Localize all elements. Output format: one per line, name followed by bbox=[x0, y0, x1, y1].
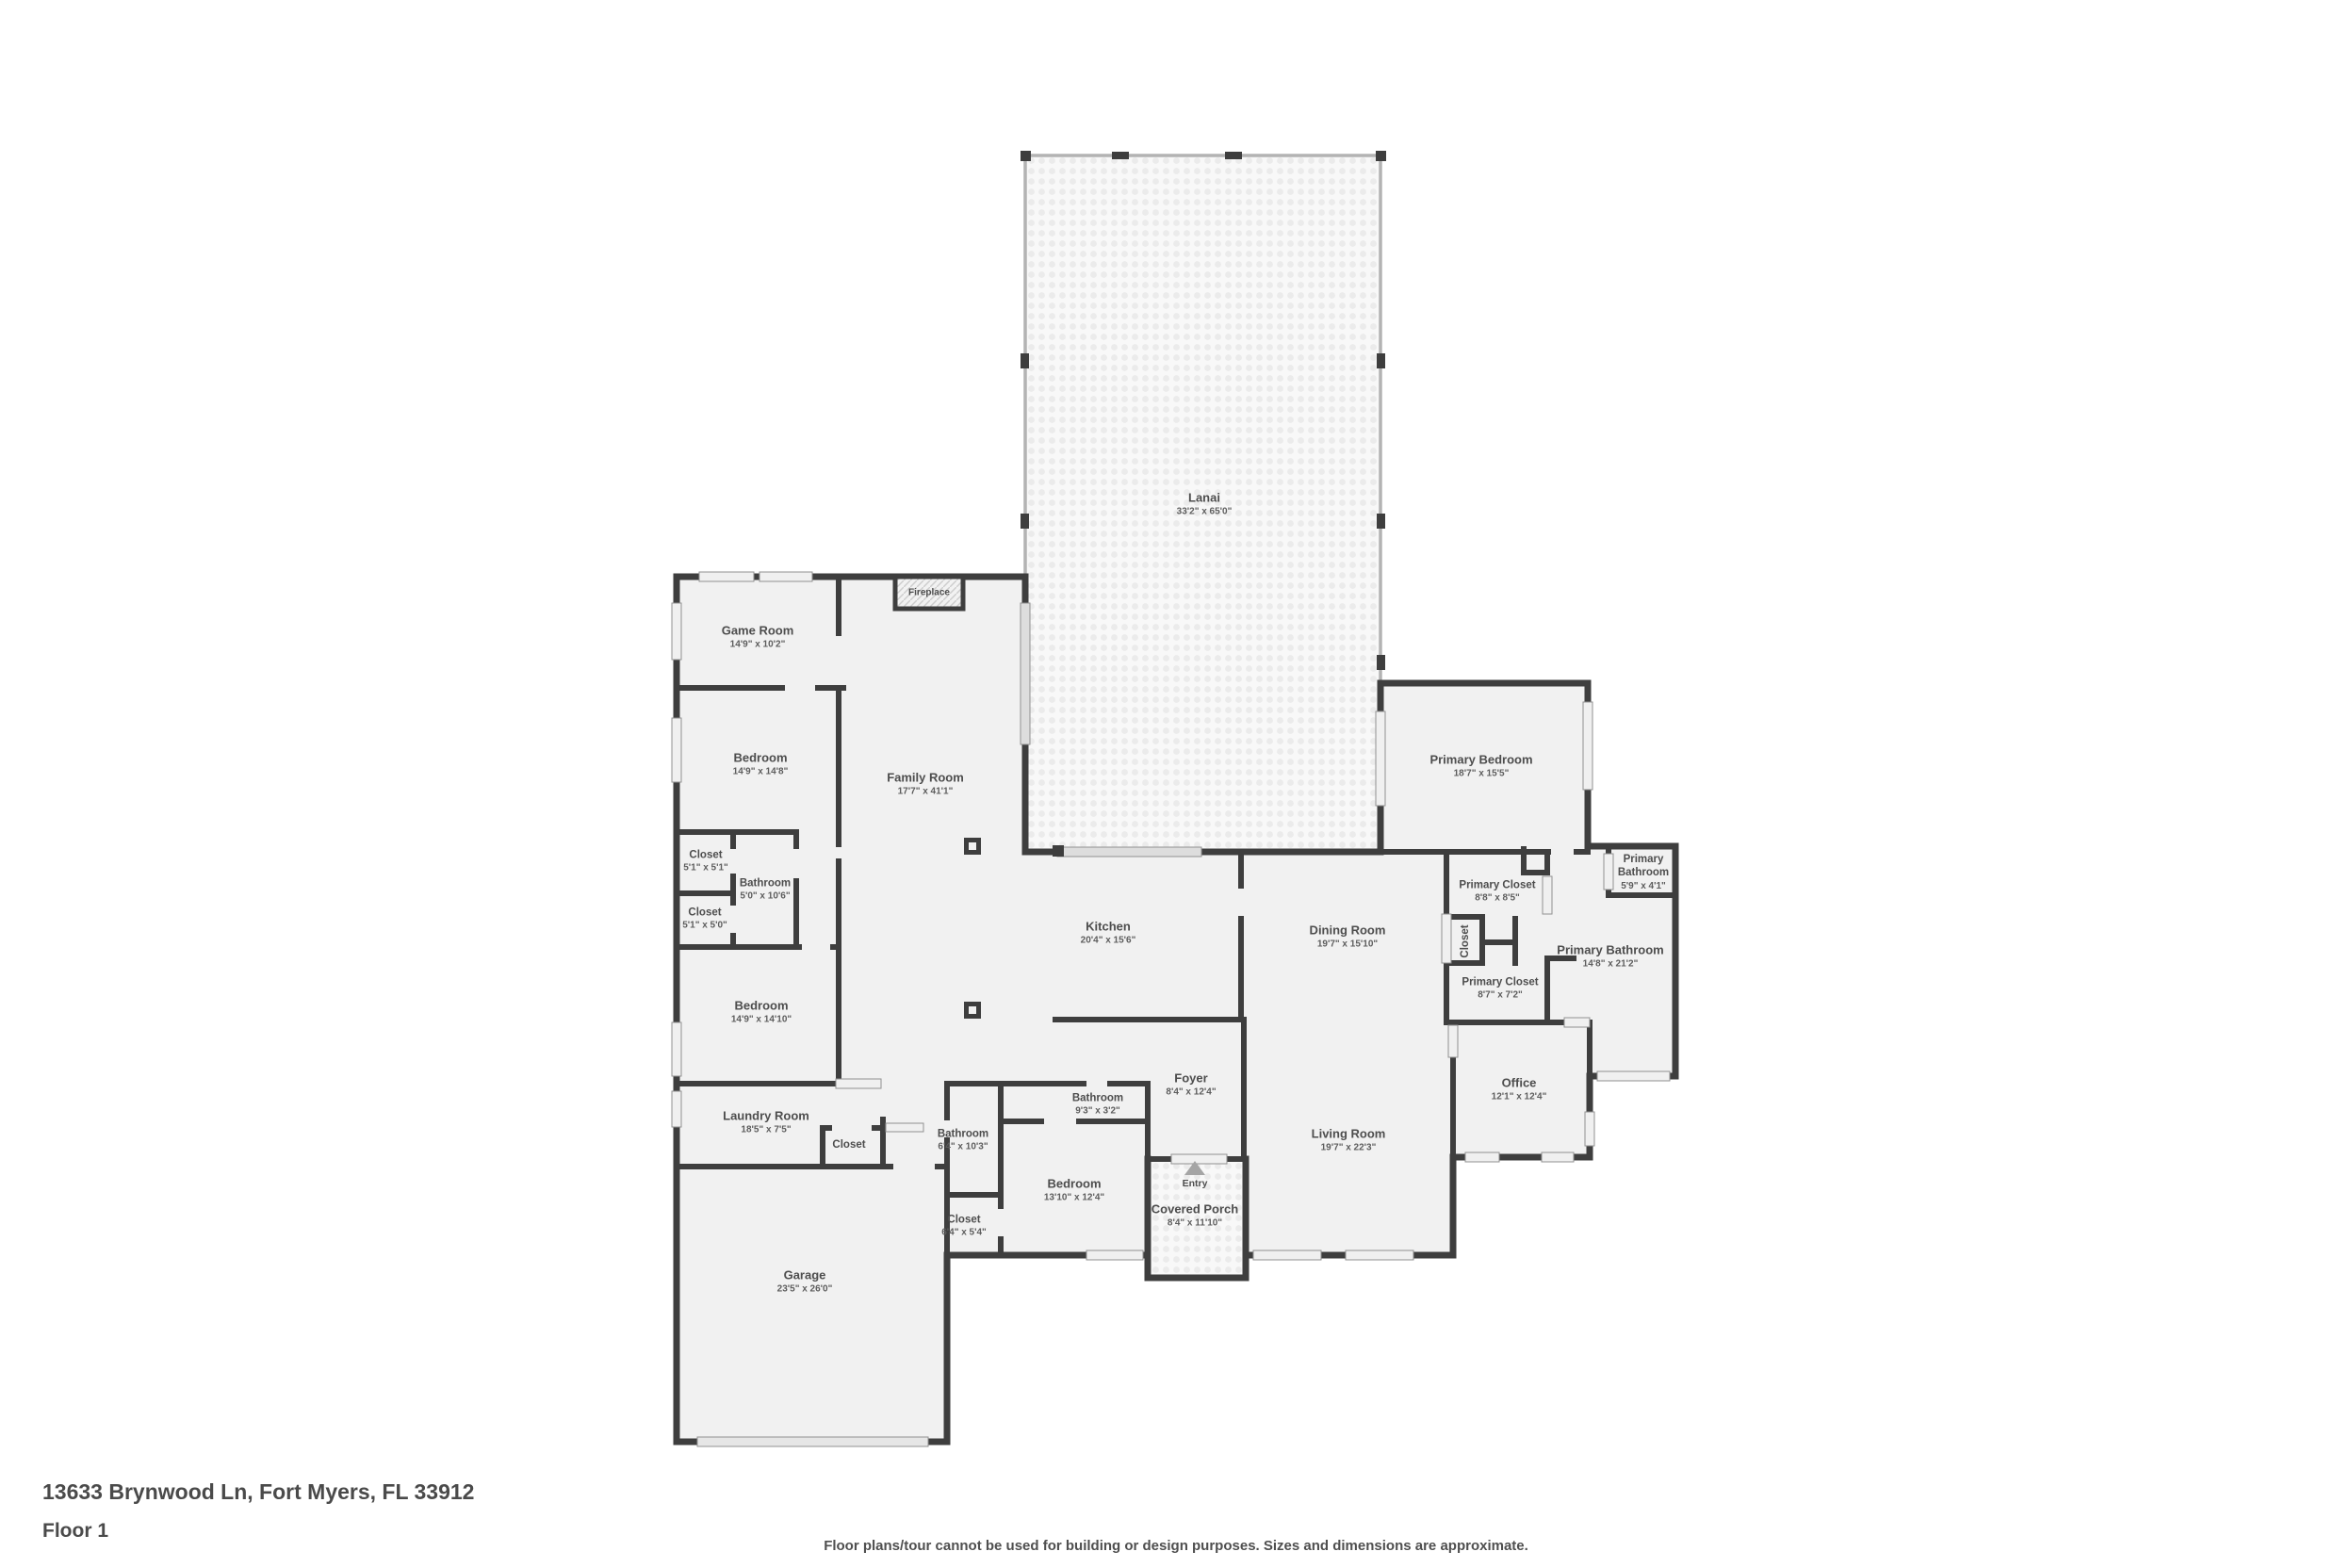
room-label-covered-porch: Covered Porch 8'4" x 11'10" bbox=[1151, 1201, 1238, 1229]
floorplan-page: Lanai 33'2" x 65'0" Game Room 14'9" x 10… bbox=[0, 0, 2352, 1568]
room-dims: 5'1" x 5'0" bbox=[682, 920, 727, 932]
room-name: Dining Room bbox=[1310, 923, 1386, 938]
room-name: Closet bbox=[941, 1213, 987, 1226]
room-dims: 14'9" x 14'8" bbox=[733, 766, 789, 778]
room-name: Closet bbox=[683, 848, 728, 861]
room-label-dining-room: Dining Room 19'7" x 15'10" bbox=[1310, 923, 1386, 950]
room-name: Bathroom bbox=[1072, 1091, 1123, 1104]
room-label-laundry: Laundry Room 18'5" x 7'5" bbox=[723, 1108, 809, 1135]
room-label-primary-bathroom-big: Primary Bathroom 14'8" x 21'2" bbox=[1557, 942, 1663, 970]
room-dims: 18'7" x 15'5" bbox=[1429, 768, 1532, 780]
room-label-closet2: Closet 5'1" x 5'0" bbox=[682, 906, 727, 931]
room-dims: 14'9" x 10'2" bbox=[722, 639, 794, 651]
room-label-bathroom2: Bathroom 9'3" x 3'2" bbox=[1072, 1091, 1123, 1117]
room-name: Bathroom bbox=[740, 876, 791, 890]
room-dims: 5'9" x 4'1" bbox=[1607, 880, 1680, 892]
room-name: Covered Porch bbox=[1151, 1201, 1238, 1217]
room-label-closet1: Closet 5'1" x 5'1" bbox=[683, 848, 728, 874]
room-dims: 23'5" x 26'0" bbox=[777, 1283, 833, 1296]
disclaimer-text: Floor plans/tour cannot be used for buil… bbox=[0, 1538, 2352, 1554]
room-name: Primary Closet bbox=[1462, 975, 1538, 988]
room-name: Lanai bbox=[1177, 490, 1233, 505]
room-name: Primary Bedroom bbox=[1429, 752, 1532, 767]
room-dims: 12'1" x 12'4" bbox=[1492, 1091, 1547, 1103]
room-name: Game Room bbox=[722, 623, 794, 638]
room-dims: 14'9" x 14'10" bbox=[731, 1014, 792, 1026]
room-dims: 9'3" x 3'2" bbox=[1072, 1105, 1123, 1118]
room-name: Primary Bathroom bbox=[1557, 942, 1663, 957]
room-label-laundry-closet: Closet bbox=[832, 1138, 865, 1151]
floorplan-svg bbox=[0, 0, 2352, 1568]
room-label-office: Office 12'1" x 12'4" bbox=[1492, 1075, 1547, 1102]
room-label-bathroom3: Bathroom 6'4" x 10'3" bbox=[938, 1127, 988, 1152]
room-name: Bedroom bbox=[1044, 1176, 1104, 1191]
room-name: Bedroom bbox=[731, 998, 792, 1013]
room-dims: 6'4" x 5'4" bbox=[941, 1227, 987, 1239]
room-name: Bedroom bbox=[733, 750, 789, 765]
room-name: Garage bbox=[777, 1267, 833, 1282]
room-name: Bathroom bbox=[938, 1127, 988, 1140]
room-dims: 14'8" x 21'2" bbox=[1557, 958, 1663, 971]
room-name: Family Room bbox=[887, 770, 964, 785]
room-name: Foyer bbox=[1166, 1070, 1216, 1086]
entry-arrow-icon bbox=[1184, 1161, 1205, 1175]
room-label-primary-bedroom: Primary Bedroom 18'7" x 15'5" bbox=[1429, 752, 1532, 779]
room-dims: 13'10" x 12'4" bbox=[1044, 1192, 1104, 1204]
property-address: 13633 Brynwood Ln, Fort Myers, FL 33912 bbox=[42, 1479, 474, 1505]
room-label-primary-bathroom-small: Primary Bathroom 5'9" x 4'1" bbox=[1607, 853, 1680, 892]
room-dims: 6'4" x 10'3" bbox=[938, 1141, 988, 1153]
room-dims: 8'4" x 11'10" bbox=[1151, 1217, 1238, 1230]
room-dims: 19'7" x 15'10" bbox=[1310, 939, 1386, 951]
room-label-closet3: Closet 6'4" x 5'4" bbox=[941, 1213, 987, 1238]
room-label-kitchen: Kitchen 20'4" x 15'6" bbox=[1081, 919, 1136, 946]
room-label-garage: Garage 23'5" x 26'0" bbox=[777, 1267, 833, 1295]
room-label-primary-closet2: Primary Closet 8'7" x 7'2" bbox=[1462, 975, 1538, 1001]
room-label-bedroom1: Bedroom 14'9" x 14'8" bbox=[733, 750, 789, 777]
room-label-foyer: Foyer 8'4" x 12'4" bbox=[1166, 1070, 1216, 1098]
room-label-family-room: Family Room 17'7" x 41'1" bbox=[887, 770, 964, 797]
room-label-game-room: Game Room 14'9" x 10'2" bbox=[722, 623, 794, 650]
room-dims: 8'4" x 12'4" bbox=[1166, 1086, 1216, 1099]
room-label-bathroom1: Bathroom 5'0" x 10'6" bbox=[740, 876, 791, 902]
room-label-primary-closet1: Primary Closet 8'8" x 8'5" bbox=[1459, 878, 1535, 904]
entry-label: Entry bbox=[1183, 1178, 1208, 1189]
room-name: Living Room bbox=[1312, 1126, 1386, 1141]
room-name: Closet bbox=[1459, 924, 1472, 957]
room-label-bedroom3: Bedroom 13'10" x 12'4" bbox=[1044, 1176, 1104, 1203]
room-label-lanai: Lanai 33'2" x 65'0" bbox=[1177, 490, 1233, 517]
room-dims: 33'2" x 65'0" bbox=[1177, 506, 1233, 518]
room-dims: 18'5" x 7'5" bbox=[723, 1124, 809, 1136]
room-dims: 5'1" x 5'1" bbox=[683, 862, 728, 874]
room-name: Closet bbox=[682, 906, 727, 919]
room-dims: 17'7" x 41'1" bbox=[887, 786, 964, 798]
room-name: Primary Closet bbox=[1459, 878, 1535, 891]
room-label-living-room: Living Room 19'7" x 22'3" bbox=[1312, 1126, 1386, 1153]
room-name: Laundry Room bbox=[723, 1108, 809, 1123]
room-name: Kitchen bbox=[1081, 919, 1136, 934]
room-dims: 20'4" x 15'6" bbox=[1081, 935, 1136, 947]
room-name: Office bbox=[1492, 1075, 1547, 1090]
room-name: Closet bbox=[832, 1138, 865, 1151]
room-label-bedroom2: Bedroom 14'9" x 14'10" bbox=[731, 998, 792, 1025]
room-dims: 8'8" x 8'5" bbox=[1459, 892, 1535, 905]
fireplace-label: Fireplace bbox=[908, 588, 950, 598]
room-dims: 8'7" x 7'2" bbox=[1462, 989, 1538, 1002]
room-dims: 5'0" x 10'6" bbox=[740, 890, 791, 903]
room-label-hall-closet: Closet bbox=[1459, 924, 1472, 957]
room-dims: 19'7" x 22'3" bbox=[1312, 1142, 1386, 1154]
room-name: Primary Bathroom bbox=[1607, 853, 1680, 880]
